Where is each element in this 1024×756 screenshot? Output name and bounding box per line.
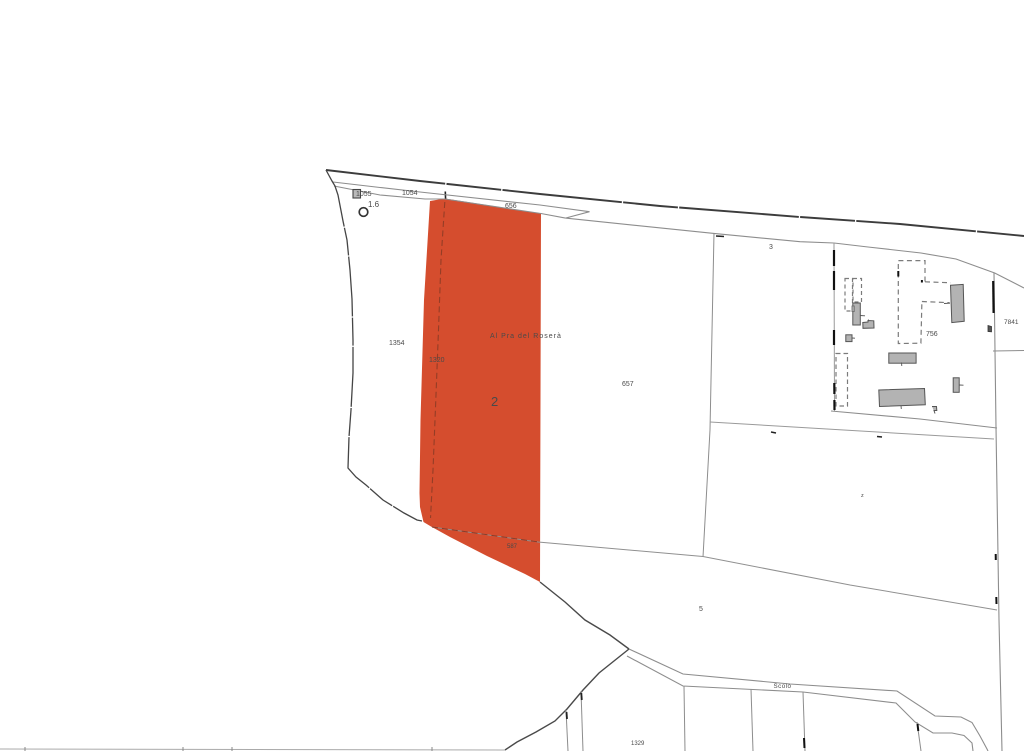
svg-text:1354: 1354 <box>389 340 405 347</box>
svg-text:5: 5 <box>699 606 703 613</box>
svg-text:657: 657 <box>622 381 634 388</box>
svg-text:Al Pra del Roserà: Al Pra del Roserà <box>490 333 562 340</box>
svg-text:1320: 1320 <box>429 357 445 364</box>
svg-text:1329: 1329 <box>631 741 645 747</box>
svg-text:3: 3 <box>769 244 773 251</box>
svg-text:2: 2 <box>491 394 498 409</box>
svg-text:z: z <box>861 493 864 499</box>
svg-text:1055: 1055 <box>356 191 372 198</box>
svg-text:656: 656 <box>505 203 517 210</box>
svg-text:1054: 1054 <box>402 190 418 197</box>
svg-text:1.6: 1.6 <box>368 200 380 209</box>
svg-text:756: 756 <box>926 331 938 338</box>
svg-text:587: 587 <box>507 544 518 550</box>
svg-text:Scolo: Scolo <box>774 683 792 690</box>
svg-text:7841: 7841 <box>1004 319 1019 326</box>
